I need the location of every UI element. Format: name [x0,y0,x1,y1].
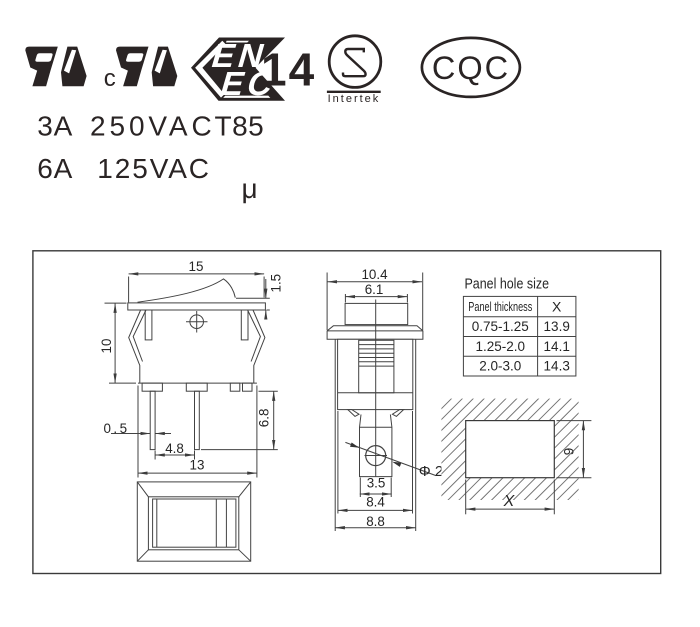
svg-text:Intertek: Intertek [328,93,381,105]
svg-text:μ: μ [242,173,258,204]
svg-text:3.5: 3.5 [367,475,386,490]
svg-text:c: c [104,65,116,92]
svg-text:X: X [503,493,516,510]
svg-text:0.5: 0.5 [103,421,129,436]
svg-text:CQC: CQC [432,50,510,86]
svg-text:X: X [552,299,562,315]
svg-text:6.1: 6.1 [365,282,384,297]
svg-text:125VAC: 125VAC [97,153,211,184]
svg-text:13.9: 13.9 [544,319,570,334]
svg-text:10.4: 10.4 [361,267,388,282]
svg-text:15: 15 [189,259,204,274]
svg-text:250VAC: 250VAC [90,111,216,142]
svg-text:9: 9 [562,448,577,455]
svg-text:Φ 2: Φ 2 [419,463,443,480]
svg-text:10: 10 [99,339,114,354]
svg-text:3A: 3A [37,111,73,142]
svg-text:Panel hole size: Panel hole size [465,277,550,293]
svg-text:14: 14 [261,44,316,96]
svg-text:4.8: 4.8 [165,441,184,456]
svg-text:13: 13 [190,458,205,473]
svg-text:14.3: 14.3 [544,359,570,374]
svg-text:8.4: 8.4 [366,495,385,510]
svg-text:1.5: 1.5 [269,274,284,293]
svg-text:8.8: 8.8 [366,514,385,529]
svg-text:T85: T85 [215,111,265,142]
svg-text:6A: 6A [37,153,73,184]
svg-text:6.8: 6.8 [257,409,272,428]
svg-text:2.0-3.0: 2.0-3.0 [479,359,521,374]
svg-text:14.1: 14.1 [544,339,570,354]
svg-text:0.75-1.25: 0.75-1.25 [472,319,529,334]
svg-text:Panel thickness: Panel thickness [468,300,532,314]
svg-text:1.25-2.0: 1.25-2.0 [476,339,526,354]
